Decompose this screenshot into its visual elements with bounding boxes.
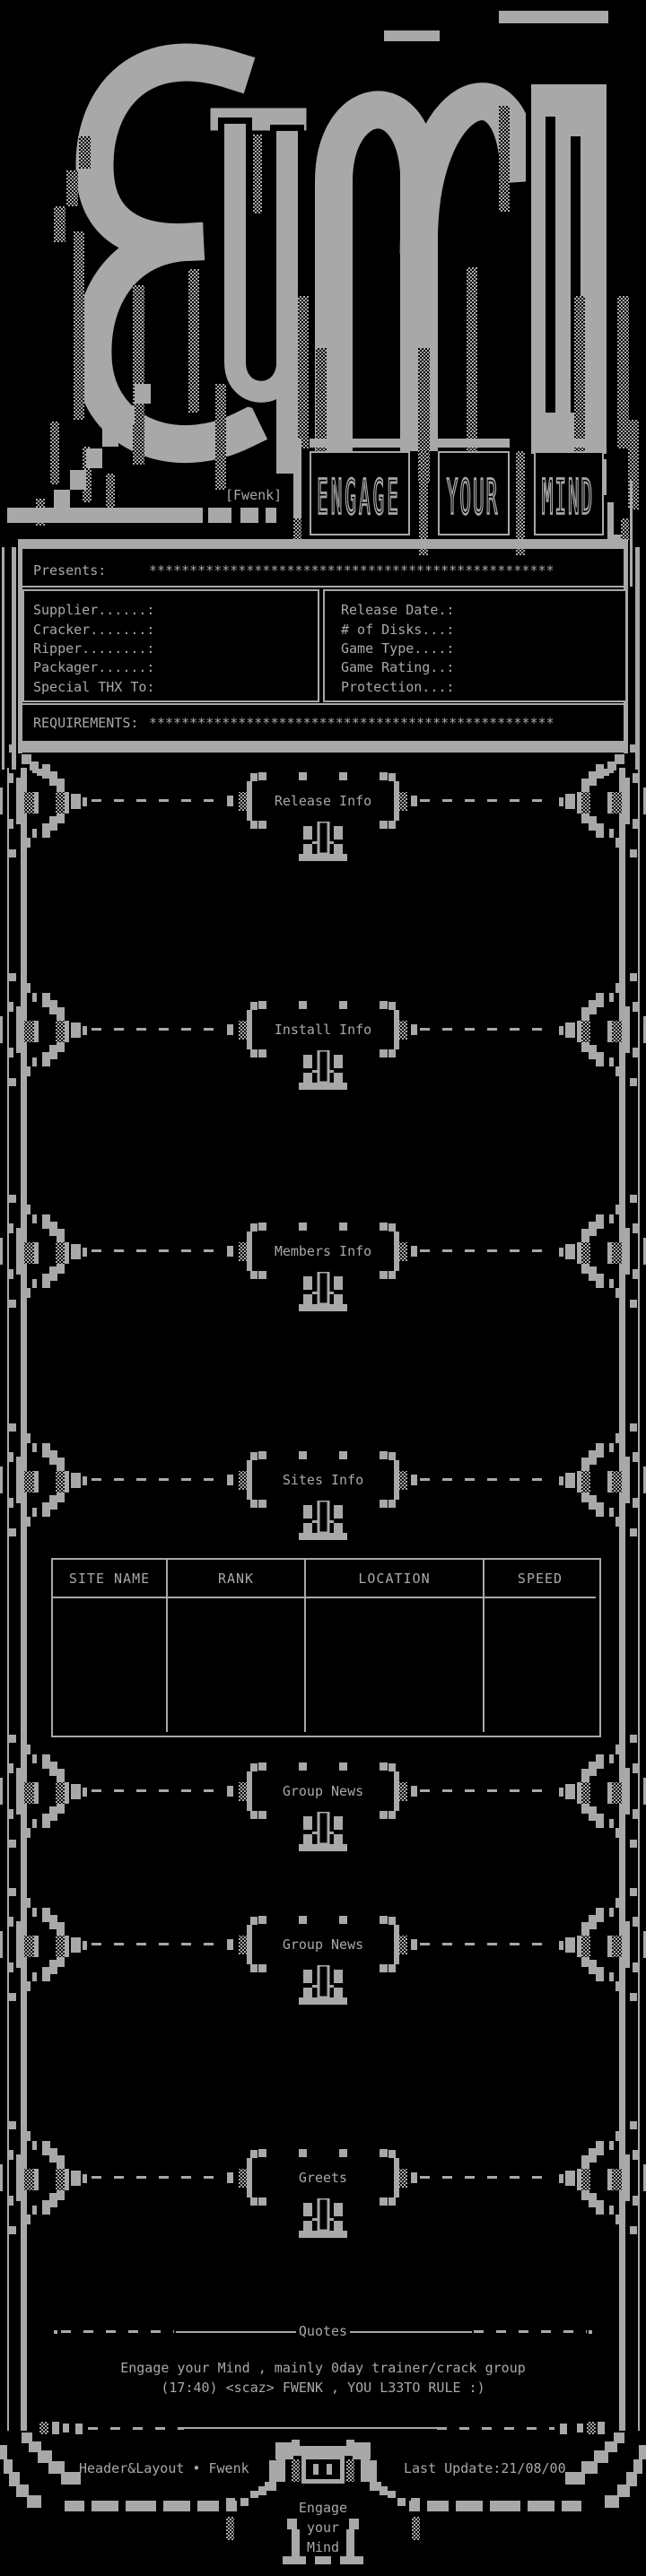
- field-packager-label: Packager......:: [33, 660, 154, 675]
- sites-table: SITE NAME RANK LOCATION SPEED: [51, 1558, 601, 1737]
- section-header-members-info: Members Info: [0, 1195, 646, 1329]
- section-header-install-info: Install Info: [0, 973, 646, 1108]
- banner-word-box-your: YOUR: [438, 451, 510, 535]
- section-title: Group News: [0, 1783, 646, 1799]
- presents-value: ****************************************…: [149, 563, 554, 579]
- gameinfo-panel: Release Date.: # of Disks...: Game Type.…: [323, 589, 627, 702]
- col-header-location: LOCATION: [306, 1571, 483, 1587]
- col-header-speed: SPEED: [484, 1571, 596, 1587]
- section-header-release-info: Release Info: [0, 744, 646, 879]
- emblem-word-mind: Mind: [0, 2540, 646, 2555]
- field-supplier-label: Supplier......:: [33, 603, 154, 618]
- credits-panel: Supplier......: Cracker.......: Ripper..…: [22, 589, 319, 702]
- footer-last-update: Last Update:21/08/00: [404, 2461, 566, 2476]
- requirements-label: REQUIREMENTS:: [33, 716, 138, 731]
- field-gamerating-label: Game Rating..:: [341, 660, 454, 675]
- banner-word-engage: ENGAGE: [317, 469, 401, 526]
- presents-label: Presents:: [33, 563, 106, 579]
- section-title: Release Info: [0, 793, 646, 809]
- field-gametype-label: Game Type....:: [341, 641, 454, 657]
- window-icon: [298, 1812, 348, 1851]
- banner-word-mind: MIND: [542, 469, 595, 526]
- section-title: Install Info: [0, 1022, 646, 1038]
- field-releasedate-label: Release Date.:: [341, 603, 454, 618]
- banner-word-box-mind: MIND: [534, 451, 604, 535]
- window-icon: [298, 1272, 348, 1311]
- nfo-page: [Fwenk] ENGAGE YOUR MIND: [0, 0, 646, 2576]
- section-title: Sites Info: [0, 1472, 646, 1488]
- banner-word-your: YOUR: [447, 469, 500, 526]
- footer: Header&Layout • Fwenk Last Update:21/08/…: [0, 2422, 646, 2576]
- field-disks-label: # of Disks...:: [341, 622, 454, 638]
- section-title: Group News: [0, 1936, 646, 1953]
- emblem-word-engage: Engage: [0, 2501, 646, 2516]
- window-icon: [298, 2198, 348, 2238]
- section-title: Members Info: [0, 1243, 646, 1259]
- quotes-section: Quotes Engage your Mind , mainly 0day tr…: [0, 2319, 646, 2417]
- field-protection-label: Protection...:: [341, 680, 454, 695]
- window-icon: [298, 822, 348, 861]
- emblem-word-your: your: [0, 2520, 646, 2536]
- col-header-site-name: SITE NAME: [53, 1571, 166, 1587]
- footer-credit: Header&Layout • Fwenk: [79, 2461, 249, 2476]
- field-ripper-label: Ripper........:: [33, 641, 154, 657]
- field-cracker-label: Cracker.......:: [33, 622, 154, 638]
- section-header-sites-info: Sites Info: [0, 1423, 646, 1558]
- window-icon: [298, 1965, 348, 2005]
- quote-line-1: Engage your Mind , mainly 0day trainer/c…: [0, 2361, 646, 2376]
- col-header-rank: RANK: [168, 1571, 304, 1587]
- section-header-group-news-2: Group News: [0, 1888, 646, 2023]
- section-header-greets: Greets: [0, 2121, 646, 2256]
- field-specialthx-label: Special THX To:: [33, 680, 154, 695]
- window-icon: [298, 1050, 348, 1090]
- window-icon: [298, 1501, 348, 1540]
- banner-word-box-engage: ENGAGE: [310, 451, 410, 535]
- section-title: Greets: [0, 2170, 646, 2186]
- requirements-value: ****************************************…: [149, 716, 554, 731]
- quote-line-2: (17:40) <scaz> FWENK , YOU L33TO RULE :): [0, 2380, 646, 2396]
- section-header-group-news-1: Group News: [0, 1735, 646, 1869]
